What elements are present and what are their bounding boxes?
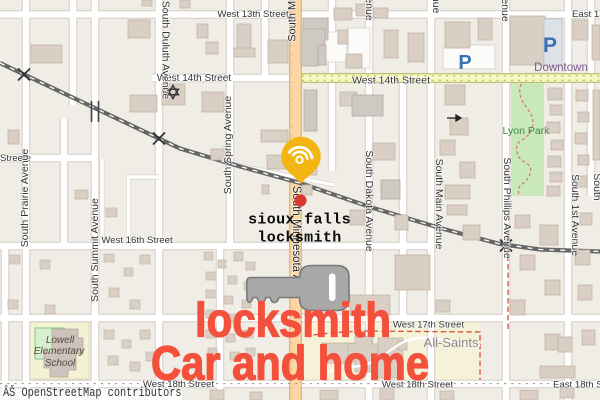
svg-text:Lowell: Lowell <box>46 335 75 346</box>
svg-text:South Phillips Avenue: South Phillips Avenue <box>501 157 513 259</box>
svg-text:ÂŠ OpenStreetMap contributors: ÂŠ OpenStreetMap contributors <box>3 385 182 400</box>
svg-text:South 1st Avenue: South 1st Avenue <box>569 174 581 256</box>
svg-text:West 17th Street: West 17th Street <box>393 320 465 331</box>
svg-text:Elementary: Elementary <box>34 346 86 357</box>
svg-text:P: P <box>543 34 557 57</box>
svg-text:South: South <box>591 173 600 201</box>
svg-text:P: P <box>458 52 471 74</box>
svg-text:South Summit Avenue: South Summit Avenue <box>89 198 101 302</box>
svg-text:East 18th Street: East 18th Street <box>553 380 600 391</box>
svg-text:Lyon Park: Lyon Park <box>503 125 551 137</box>
svg-text:locksmith: locksmith <box>257 230 341 247</box>
svg-text:South Main Avenue: South Main Avenue <box>433 159 445 250</box>
svg-text:All-Saints: All-Saints <box>424 335 479 350</box>
svg-text:Downtown: Downtown <box>534 62 588 74</box>
svg-text:sioux falls: sioux falls <box>248 212 351 229</box>
svg-text:South Dakota Avenue: South Dakota Avenue <box>363 150 375 252</box>
svg-text:West 13th Street: West 13th Street <box>217 9 289 20</box>
svg-text:South Minnesota: South Minnesota <box>287 0 299 42</box>
svg-text:South Main Avenue: South Main Avenue <box>430 0 442 14</box>
svg-text:South Spring Avenue: South Spring Avenue <box>222 96 234 195</box>
svg-text:East 13th: East 13th <box>572 9 600 20</box>
svg-text:South Phillips Avenue: South Phillips Avenue <box>499 0 511 22</box>
svg-text:West 14th Street: West 14th Street <box>352 75 430 87</box>
svg-text:School: School <box>45 358 76 369</box>
svg-text:West 16th Street: West 16th Street <box>101 235 173 246</box>
svg-text:South Prairie Avenue: South Prairie Avenue <box>19 149 31 248</box>
svg-text:South Dakota Avenue: South Dakota Avenue <box>363 0 375 21</box>
svg-text:South Duluth Avenue: South Duluth Avenue <box>160 1 172 100</box>
svg-text:Car and home: Car and home <box>151 337 429 390</box>
